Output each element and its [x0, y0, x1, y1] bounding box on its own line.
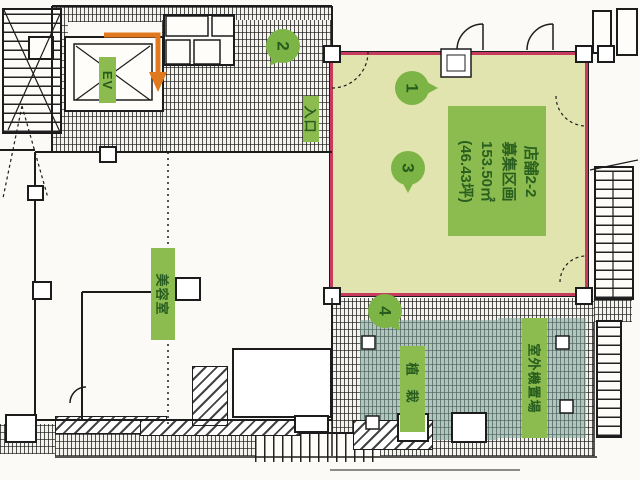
floor-plan: 店舗2-2 募集区画 153.50㎡ (46.43坪) EV 入口 美容室 植栽…: [0, 0, 640, 480]
parcel-area-m2: 153.50㎡: [475, 140, 497, 203]
marker-1-number: 1: [402, 83, 422, 92]
marker-4-number: 4: [375, 306, 395, 315]
beauty-salon-label: 美容室: [151, 248, 175, 340]
parcel-info-label: 店舗2-2 募集区画 153.50㎡ (46.43坪): [448, 106, 546, 236]
parcel-area-tsubo: (46.43坪): [454, 140, 476, 203]
marker-4: 4: [368, 294, 402, 328]
outdoor-unit-label-text: 室外機置場: [525, 343, 544, 413]
planting-label-text: 植栽: [403, 362, 422, 416]
marker-2-number: 2: [273, 41, 293, 50]
marker-1: 1: [395, 71, 429, 105]
elevator-label: EV: [99, 57, 116, 103]
entrance-label: 入口: [303, 96, 319, 142]
marker-3: 3: [391, 151, 425, 185]
parcel-subtitle: 募集区画: [497, 140, 519, 203]
entrance-label-text: 入口: [302, 105, 321, 133]
elevator-label-text: EV: [100, 70, 115, 89]
marker-2: 2: [266, 29, 300, 63]
marker-3-number: 3: [398, 163, 418, 172]
beauty-salon-label-text: 美容室: [154, 273, 173, 315]
walls: [0, 6, 332, 420]
outdoor-unit-label: 室外機置場: [522, 318, 547, 438]
parcel-title: 店舗2-2: [519, 140, 541, 203]
bottom-boundary-lines: [55, 298, 597, 470]
utility-room-dividers: [166, 16, 234, 64]
planting-label: 植栽: [400, 346, 425, 432]
parcel-info-text: 店舗2-2 募集区画 153.50㎡ (46.43坪): [454, 140, 541, 203]
